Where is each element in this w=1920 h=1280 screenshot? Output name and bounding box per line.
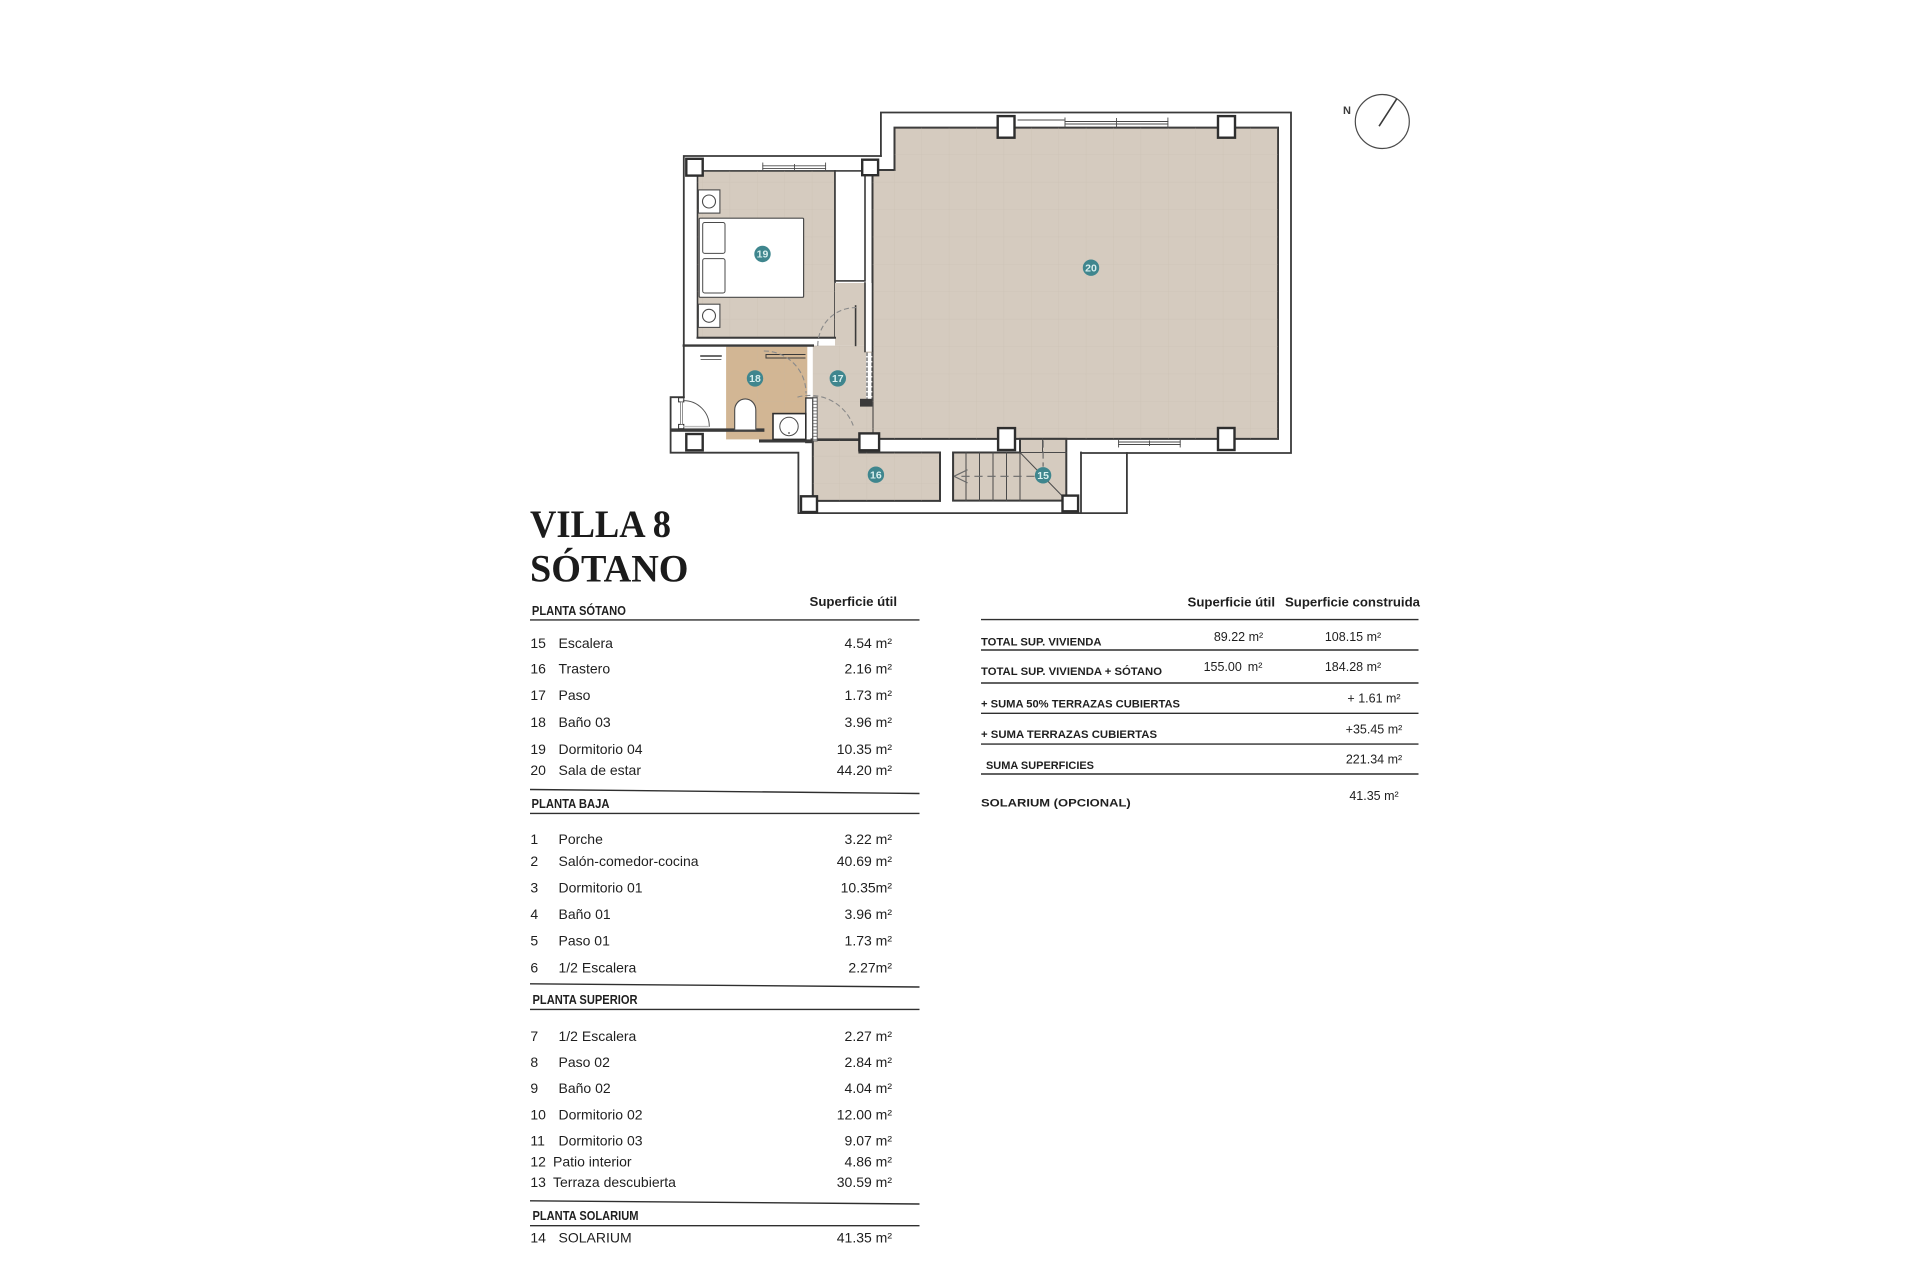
svg-text:SOLARIUM: SOLARIUM — [559, 1230, 632, 1246]
svg-text:20: 20 — [1085, 262, 1097, 274]
svg-text:1/2 Escalera: 1/2 Escalera — [559, 960, 637, 976]
svg-text:6: 6 — [530, 960, 538, 976]
svg-text:Escalera: Escalera — [559, 635, 614, 651]
svg-text:17: 17 — [832, 373, 844, 385]
svg-text:+ SUMA TERRAZAS CUBIERTAS: + SUMA TERRAZAS CUBIERTAS — [981, 729, 1157, 741]
svg-text:2.16 m²: 2.16 m² — [845, 661, 893, 677]
svg-text:Dormitorio 04: Dormitorio 04 — [559, 741, 643, 757]
svg-text:Paso: Paso — [559, 687, 591, 703]
svg-text:18: 18 — [530, 714, 546, 730]
svg-text:Superficie útil: Superficie útil — [810, 594, 898, 609]
svg-text:3.96 m²: 3.96 m² — [845, 906, 893, 922]
svg-text:Terraza descubierta: Terraza descubierta — [553, 1174, 676, 1190]
svg-text:+ 1.61 m²: + 1.61 m² — [1347, 691, 1400, 705]
svg-text:Dormitorio 02: Dormitorio 02 — [559, 1106, 643, 1122]
svg-text:13: 13 — [530, 1174, 546, 1190]
svg-text:Superficie construida: Superficie construida — [1285, 595, 1421, 610]
svg-text:19: 19 — [757, 249, 769, 261]
svg-text:9.07 m²: 9.07 m² — [845, 1132, 893, 1148]
svg-text:Porche: Porche — [559, 831, 604, 847]
svg-text:7: 7 — [530, 1028, 538, 1044]
svg-text:8: 8 — [530, 1054, 538, 1070]
svg-text:4: 4 — [530, 906, 538, 922]
svg-text:PLANTA BAJA: PLANTA BAJA — [532, 796, 611, 811]
svg-text:2.27 m²: 2.27 m² — [845, 1028, 893, 1044]
svg-text:TOTAL SUP. VIVIENDA + SÓTANO: TOTAL SUP. VIVIENDA + SÓTANO — [981, 665, 1162, 678]
svg-text:16: 16 — [530, 661, 546, 677]
svg-text:Superficie útil: Superficie útil — [1188, 595, 1276, 610]
svg-text:4.04 m²: 4.04 m² — [845, 1080, 893, 1096]
svg-text:Dormitorio 01: Dormitorio 01 — [559, 880, 643, 896]
svg-text:10.35 m²: 10.35 m² — [837, 741, 893, 757]
svg-text:1.73 m²: 1.73 m² — [845, 687, 893, 703]
svg-text:SUMA SUPERFICIES: SUMA SUPERFICIES — [986, 760, 1094, 772]
svg-text:N: N — [1343, 105, 1351, 117]
svg-text:40.69 m²: 40.69 m² — [837, 853, 893, 869]
svg-text:3: 3 — [530, 880, 538, 896]
svg-text:12: 12 — [530, 1153, 546, 1169]
svg-text:Paso 02: Paso 02 — [559, 1054, 611, 1070]
svg-text:10.35m²: 10.35m² — [841, 880, 893, 896]
svg-text:2.84 m²: 2.84 m² — [845, 1054, 893, 1070]
svg-text:Trastero: Trastero — [559, 661, 611, 677]
svg-text:4.54 m²: 4.54 m² — [845, 635, 893, 651]
svg-text:2: 2 — [530, 853, 538, 869]
svg-text:1: 1 — [530, 831, 538, 847]
svg-text:30.59 m²: 30.59 m² — [837, 1174, 893, 1190]
svg-text:41.35 m²: 41.35 m² — [837, 1230, 893, 1246]
svg-text:15: 15 — [1037, 470, 1049, 482]
svg-text:TOTAL SUP. VIVIENDA: TOTAL SUP. VIVIENDA — [981, 637, 1102, 649]
svg-text:20: 20 — [530, 762, 546, 778]
svg-text:184.28 m²: 184.28 m² — [1325, 660, 1381, 674]
svg-text:10: 10 — [530, 1106, 546, 1122]
svg-text:12.00 m²: 12.00 m² — [837, 1106, 893, 1122]
svg-text:16: 16 — [870, 469, 882, 481]
svg-text:4.86 m²: 4.86 m² — [845, 1153, 893, 1169]
svg-text:89.22 m²: 89.22 m² — [1214, 630, 1263, 644]
svg-text:Paso 01: Paso 01 — [559, 933, 611, 949]
svg-text:2.27m²: 2.27m² — [848, 960, 892, 976]
svg-text:15: 15 — [530, 635, 546, 651]
svg-text:Salón-comedor-cocina: Salón-comedor-cocina — [559, 853, 699, 869]
svg-text:SOLARIUM (OPCIONAL): SOLARIUM (OPCIONAL) — [981, 798, 1131, 810]
svg-text:221.34 m²: 221.34 m² — [1346, 753, 1402, 767]
svg-text:PLANTA SÓTANO: PLANTA SÓTANO — [532, 603, 626, 618]
svg-text:1/2 Escalera: 1/2 Escalera — [559, 1028, 637, 1044]
svg-text:VILLA 8: VILLA 8 — [530, 503, 671, 546]
svg-text:Patio interior: Patio interior — [553, 1153, 632, 1169]
svg-text:5: 5 — [530, 933, 538, 949]
svg-text:SÓTANO: SÓTANO — [530, 547, 689, 591]
svg-text:PLANTA SUPERIOR: PLANTA SUPERIOR — [533, 992, 639, 1007]
svg-text:Baño 01: Baño 01 — [559, 906, 611, 922]
svg-text:Sala de estar: Sala de estar — [559, 762, 642, 778]
svg-text:14: 14 — [530, 1230, 546, 1246]
svg-text:11: 11 — [530, 1132, 545, 1148]
svg-text:Baño 02: Baño 02 — [559, 1080, 611, 1096]
svg-text:3.96 m²: 3.96 m² — [845, 714, 893, 730]
svg-text:+35.45 m²: +35.45 m² — [1346, 723, 1403, 737]
svg-text:PLANTA SOLARIUM: PLANTA SOLARIUM — [533, 1208, 639, 1223]
svg-text:9: 9 — [530, 1080, 538, 1096]
svg-text:17: 17 — [530, 687, 546, 703]
svg-text:41.35 m²: 41.35 m² — [1349, 789, 1398, 803]
svg-text:44.20 m²: 44.20 m² — [837, 762, 893, 778]
svg-text:155.00 m²: 155.00 m² — [1204, 660, 1263, 674]
svg-text:108.15 m²: 108.15 m² — [1325, 630, 1381, 644]
svg-text:Baño 03: Baño 03 — [559, 714, 611, 730]
svg-text:Dormitorio 03: Dormitorio 03 — [559, 1132, 643, 1148]
svg-text:3.22 m²: 3.22 m² — [845, 831, 893, 847]
svg-text:18: 18 — [749, 373, 761, 385]
svg-text:19: 19 — [530, 741, 546, 757]
svg-text:1.73 m²: 1.73 m² — [845, 933, 893, 949]
svg-text:+ SUMA 50% TERRAZAS CUBIERTAS: + SUMA 50% TERRAZAS CUBIERTAS — [981, 699, 1180, 711]
